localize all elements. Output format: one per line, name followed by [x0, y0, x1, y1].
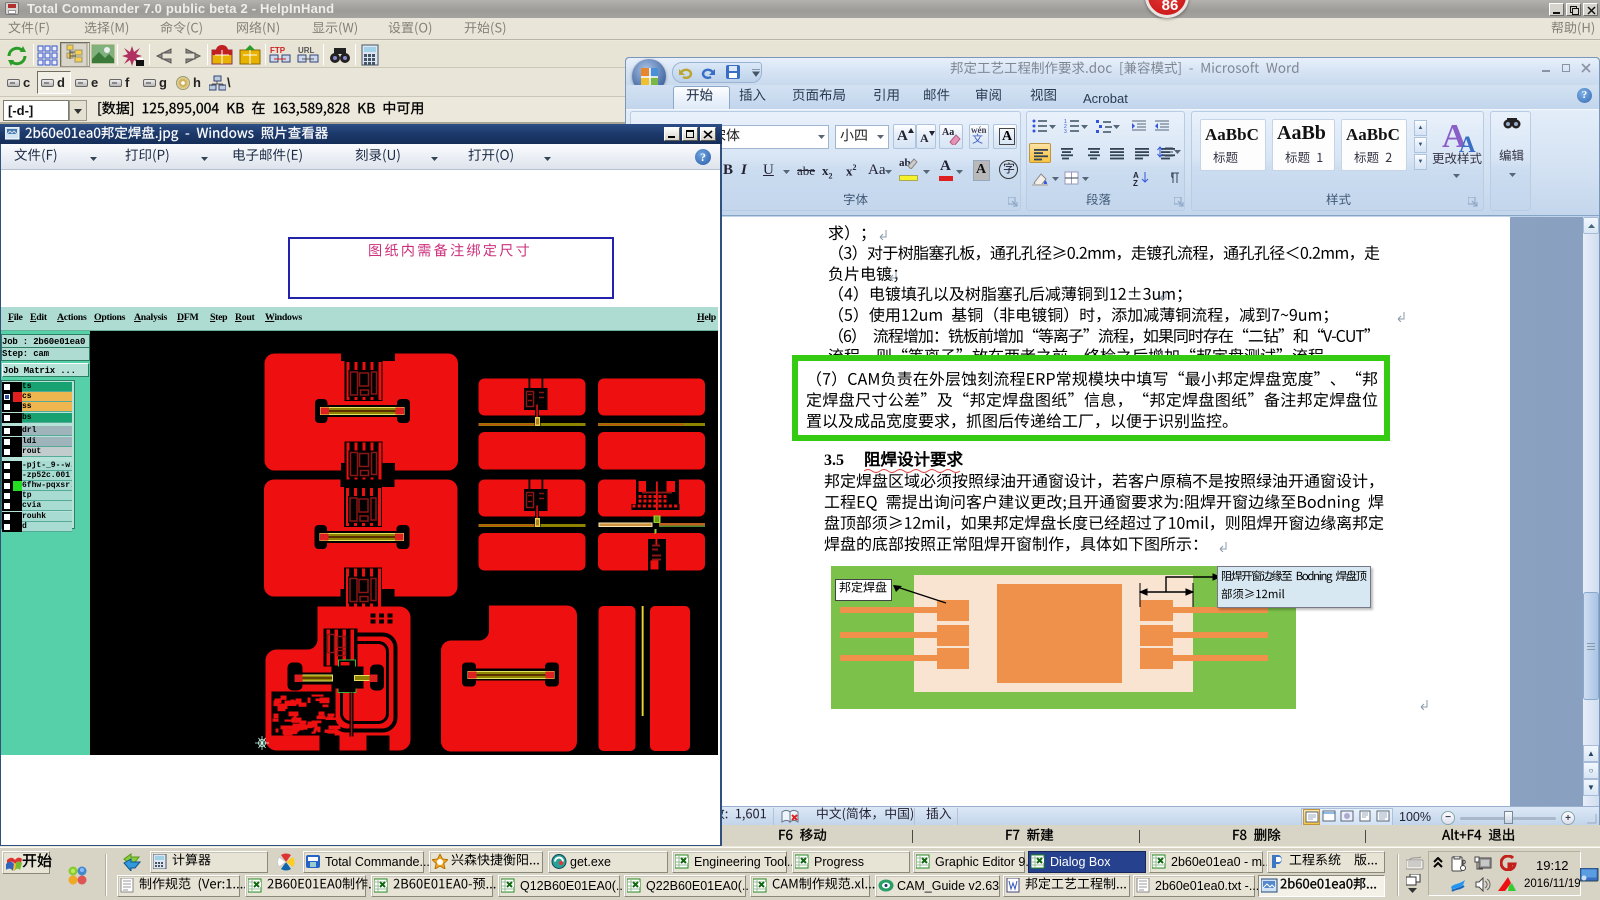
svg-text:Z: Z: [1133, 179, 1138, 186]
svg-text:3: 3: [1064, 129, 1067, 133]
svg-text:A: A: [1459, 132, 1476, 154]
svg-text:FTP: FTP: [270, 46, 286, 55]
svg-text:URL: URL: [298, 46, 315, 55]
